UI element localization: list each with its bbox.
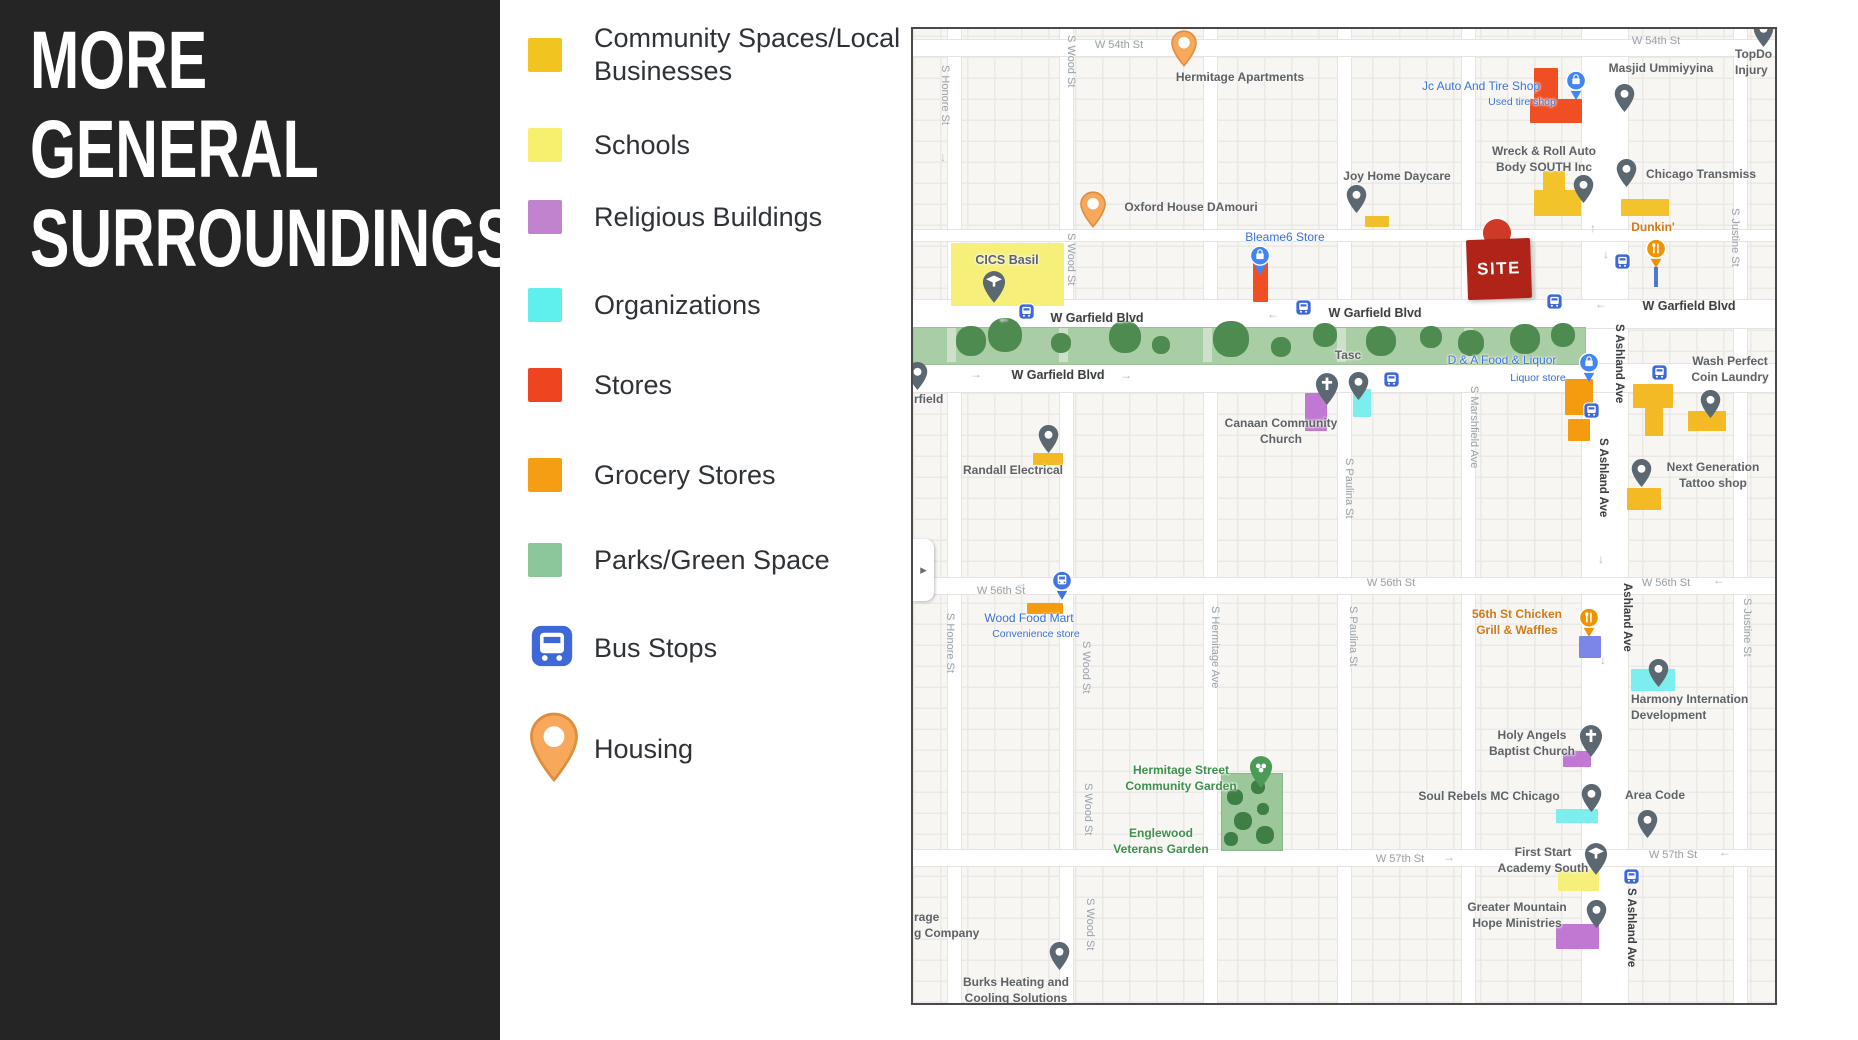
map-label-s-ashland-ave: S Ashland Ave bbox=[1597, 438, 1609, 517]
housing-pin-icon bbox=[528, 712, 580, 787]
map-label-s-honore-st: S Honore St bbox=[939, 65, 951, 125]
map-label-s-wood-st: S Wood St bbox=[1080, 641, 1092, 693]
label-line: ↓ bbox=[1600, 652, 1606, 668]
legend-label-stores: Stores bbox=[594, 369, 924, 402]
label-line: Baptist Church bbox=[1489, 743, 1575, 759]
map-label-chicago-transmiss: Chicago Transmiss bbox=[1646, 166, 1756, 182]
map-label-convenience-store: Convenience store bbox=[992, 626, 1080, 642]
map-label-harmony-internation: Harmony InternationDevelopment bbox=[1631, 691, 1748, 723]
organizations-swatch bbox=[528, 288, 562, 322]
label-line: Veterans Garden bbox=[1113, 841, 1208, 857]
map-label-s-wood-st: S Wood St bbox=[1084, 898, 1096, 950]
bus-57th-st bbox=[1623, 868, 1640, 890]
map-label-s-ashland-ave: S Ashland Ave bbox=[1625, 888, 1637, 967]
map-label-w-57th-st: W 57th St bbox=[1376, 851, 1424, 867]
map-label-label: ← bbox=[1595, 296, 1607, 312]
map-label-masjid-ummiyyina: Masjid Ummiyyina bbox=[1609, 60, 1714, 76]
map-label-label: → bbox=[1015, 575, 1027, 591]
label-line: → bbox=[1120, 367, 1132, 383]
map-label-joy-home-daycare: Joy Home Daycare bbox=[1343, 168, 1450, 184]
map-label-next-generation: Next GenerationTattoo shop bbox=[1667, 459, 1760, 491]
joy-daycare-block bbox=[1365, 216, 1389, 227]
pin-garfield-west bbox=[911, 361, 929, 396]
label-line: Hope Ministries bbox=[1467, 915, 1566, 931]
legend-item-grocery: Grocery Stores bbox=[528, 458, 924, 492]
legend-item-housing: Housing bbox=[528, 712, 924, 787]
pin-burks-heating bbox=[1048, 941, 1071, 976]
housing-hermitage-apartments bbox=[1170, 30, 1198, 72]
pin-joy-home-daycare bbox=[1345, 184, 1368, 219]
label-line: Community Garden bbox=[1125, 778, 1236, 794]
map-label-area-code: Area Code bbox=[1625, 787, 1685, 803]
map-label-label: ↓ bbox=[1603, 246, 1609, 262]
map-canvas: W 54th StW 54th StW 56th StW 56th StW 56… bbox=[911, 27, 1777, 1005]
label-line: W Garfield Blvd bbox=[1328, 305, 1421, 321]
map-label-englewood: EnglewoodVeterans Garden bbox=[1113, 825, 1208, 857]
bus-garfield-3 bbox=[1546, 293, 1563, 315]
legend-label-bus: Bus Stops bbox=[594, 632, 924, 665]
median-tree bbox=[1420, 326, 1442, 348]
map-label-tasc: Tasc bbox=[1335, 347, 1361, 363]
pin-harmony-international bbox=[1647, 658, 1670, 693]
label-line: Convenience store bbox=[992, 626, 1080, 642]
label-line: Jc Auto And Tire Shop bbox=[1422, 78, 1540, 94]
label-line: rage bbox=[914, 909, 979, 925]
map-label-oxford-house-damouri: Oxford House DAmouri bbox=[1124, 199, 1257, 215]
map-label-s-hermitage-ave: S Hermitage Ave bbox=[1209, 606, 1221, 688]
label-line: ← bbox=[1713, 572, 1725, 588]
map-label-s-ashland-ave: S Ashland Ave bbox=[1613, 324, 1625, 403]
pin-first-start-academy bbox=[1583, 842, 1609, 881]
label-line: W 54th St bbox=[1095, 37, 1143, 53]
map-label-label: ↑ bbox=[1590, 220, 1596, 236]
label-line: Wood Food Mart bbox=[984, 610, 1073, 626]
stores-swatch bbox=[528, 368, 562, 402]
title-line-2: GENERAL bbox=[30, 105, 515, 194]
label-line: → bbox=[1015, 575, 1027, 591]
map-label-label: ← bbox=[998, 310, 1010, 326]
label-line: → bbox=[970, 366, 982, 382]
map-label-label: ↓ bbox=[1600, 652, 1606, 668]
legend-label-schools: Schools bbox=[594, 129, 924, 162]
religious-swatch bbox=[528, 200, 562, 234]
label-line: First Start bbox=[1498, 844, 1589, 860]
median-tree bbox=[1551, 323, 1575, 347]
pin-cics-basil bbox=[981, 270, 1007, 309]
pin-canaan-church bbox=[1314, 372, 1340, 411]
legend-label-housing: Housing bbox=[594, 733, 924, 766]
pin-holy-angels bbox=[1578, 724, 1604, 763]
dunkin-block bbox=[1621, 199, 1669, 216]
map-label-s-marshfield-ave: S Marshfield Ave bbox=[1468, 386, 1480, 468]
bus-garfield-2 bbox=[1295, 299, 1312, 321]
food-dunkin-post bbox=[1654, 267, 1658, 287]
bus-garfield-4 bbox=[1383, 371, 1400, 393]
label-line: Chicago Transmiss bbox=[1646, 166, 1756, 182]
label-line: Harmony Internation bbox=[1631, 691, 1748, 707]
map-label-wood-food-mart: Wood Food Mart bbox=[984, 610, 1073, 626]
map-label-w-garfield-blvd: W Garfield Blvd bbox=[1328, 305, 1421, 321]
map-label-bleame6-store: Bleame6 Store bbox=[1245, 229, 1324, 245]
median-tree bbox=[1271, 337, 1291, 357]
garden-tree bbox=[1257, 803, 1269, 815]
label-line: Cooling Solutions bbox=[963, 990, 1069, 1005]
label-line: W Garfield Blvd bbox=[1011, 367, 1104, 383]
legend-item-religious: Religious Buildings bbox=[528, 200, 924, 234]
label-line: Coin Laundry bbox=[1691, 369, 1768, 385]
garden-tree bbox=[1256, 826, 1274, 844]
sidebar: MORE GENERAL SURROUNDINGS bbox=[0, 0, 500, 1040]
page-title: MORE GENERAL SURROUNDINGS bbox=[30, 16, 515, 283]
pin-masjid-ummiyyina bbox=[1613, 83, 1636, 118]
median-tree bbox=[1051, 333, 1071, 353]
legend-item-community: Community Spaces/Local Businesses bbox=[528, 22, 924, 88]
legend-item-bus: Bus Stops bbox=[528, 622, 924, 675]
label-line: Soul Rebels MC Chicago bbox=[1418, 788, 1559, 804]
map-label-s-paulina-st: S Paulina St bbox=[1343, 458, 1355, 519]
label-line: Injury bbox=[1735, 62, 1772, 78]
median-tree bbox=[1510, 324, 1540, 354]
label-line: Used tire shop bbox=[1488, 94, 1556, 110]
bus-wash-perfect bbox=[1651, 364, 1668, 386]
label-line: Randall Electrical bbox=[963, 462, 1063, 478]
pin-soul-rebels bbox=[1580, 783, 1603, 818]
label-line: Oxford House DAmouri bbox=[1124, 199, 1257, 215]
label-line: W 57th St bbox=[1376, 851, 1424, 867]
transit-56th-st bbox=[1050, 570, 1074, 606]
label-line: Academy South bbox=[1498, 860, 1589, 876]
map-label-w-56th-st: W 56th St bbox=[1367, 575, 1415, 591]
legend-label-community: Community Spaces/Local Businesses bbox=[594, 22, 924, 88]
median-tree bbox=[1366, 326, 1396, 356]
legend-item-parks: Parks/Green Space bbox=[528, 543, 924, 577]
map-label-label: → bbox=[970, 366, 982, 382]
map-label-w-57th-st: W 57th St bbox=[1649, 847, 1697, 863]
label-line: Body SOUTH Inc bbox=[1492, 159, 1596, 175]
parks-swatch bbox=[528, 543, 562, 577]
median-gap bbox=[947, 328, 956, 362]
label-line: Burks Heating and bbox=[963, 974, 1069, 990]
map-label-canaan-community: Canaan CommunityChurch bbox=[1225, 415, 1338, 447]
map-label-used-tire-shop: Used tire shop bbox=[1488, 94, 1556, 110]
map-label-label: ↓ bbox=[1598, 551, 1604, 567]
food-chicken-grill bbox=[1577, 607, 1601, 643]
label-line: → bbox=[1443, 849, 1455, 865]
bus-stop-icon bbox=[528, 622, 576, 675]
label-line: Next Generation bbox=[1667, 459, 1760, 475]
map-label-soul-rebels-mc-chicago: Soul Rebels MC Chicago bbox=[1418, 788, 1559, 804]
label-line: Masjid Ummiyyina bbox=[1609, 60, 1714, 76]
garden-tree bbox=[1224, 832, 1238, 846]
map-label-greater-mountain: Greater MountainHope Ministries bbox=[1467, 899, 1566, 931]
pin-area-code bbox=[1636, 809, 1659, 844]
median-gap bbox=[1203, 328, 1212, 362]
label-line: g Company bbox=[914, 925, 979, 941]
map-label-w-54th-st: W 54th St bbox=[1095, 37, 1143, 53]
label-line: W 56th St bbox=[1367, 575, 1415, 591]
map-label-s-wood-st: S Wood St bbox=[1082, 783, 1094, 835]
title-line-1: MORE bbox=[30, 16, 515, 105]
label-line: Canaan Community bbox=[1225, 415, 1338, 431]
pin-randall-electrical bbox=[1037, 424, 1060, 459]
bus-near-dunkin bbox=[1614, 253, 1631, 275]
pin-topdog-injury bbox=[1752, 27, 1775, 53]
title-line-3: SURROUNDINGS bbox=[30, 194, 515, 283]
map-label-wreck-roll-auto: Wreck & Roll AutoBody SOUTH Inc bbox=[1492, 143, 1596, 175]
map-label-label: → bbox=[1443, 849, 1455, 865]
map-panel-collapse-tab: ▸ bbox=[913, 539, 934, 601]
map-label-rage: rageg Company bbox=[914, 909, 979, 941]
median-tree bbox=[1213, 321, 1249, 357]
map-label-label: ↓ bbox=[940, 149, 946, 165]
label-line: ↓ bbox=[1598, 551, 1604, 567]
map-label-s-justine-st: S Justine St bbox=[1729, 208, 1741, 267]
pin-greater-mountain bbox=[1585, 899, 1608, 934]
map-label-label: → bbox=[1120, 367, 1132, 383]
legend-label-grocery: Grocery Stores bbox=[594, 459, 924, 492]
label-line: W 57th St bbox=[1649, 847, 1697, 863]
map-label-label: ← bbox=[1719, 844, 1731, 860]
pin-chicago-transmission bbox=[1615, 158, 1638, 193]
label-line: ↓ bbox=[1603, 246, 1609, 262]
map-label-w-garfield-blvd: W Garfield Blvd bbox=[1642, 298, 1735, 314]
label-line: Hermitage Street bbox=[1125, 762, 1236, 778]
site-label: SITE bbox=[1466, 238, 1532, 300]
label-line: ↑ bbox=[1590, 220, 1596, 236]
wash-perfect-a bbox=[1633, 384, 1673, 408]
label-line: 56th St Chicken bbox=[1472, 606, 1562, 622]
bus-garfield-1 bbox=[1018, 303, 1035, 325]
label-line: CICS Basil bbox=[975, 252, 1038, 268]
map-label-first-start: First StartAcademy South bbox=[1498, 844, 1589, 876]
map-label-w-56th-st: W 56th St bbox=[1642, 575, 1690, 591]
road-w-57th-st bbox=[913, 849, 1775, 867]
map-label-jc-auto-and-tire-shop: Jc Auto And Tire Shop bbox=[1422, 78, 1540, 94]
pin-wash-perfect bbox=[1699, 389, 1722, 424]
slide: { "slide": { "title_lines": ["MORE", "GE… bbox=[0, 0, 1858, 1040]
median-tree bbox=[1313, 323, 1337, 347]
legend-item-organizations: Organizations bbox=[528, 288, 924, 322]
label-line: Greater Mountain bbox=[1467, 899, 1566, 915]
label-line: Dunkin' bbox=[1631, 219, 1675, 235]
label-line: ← bbox=[1267, 306, 1279, 322]
label-line: Church bbox=[1225, 431, 1338, 447]
median-tree bbox=[956, 326, 986, 356]
median-tree bbox=[1152, 336, 1170, 354]
legend-label-parks: Parks/Green Space bbox=[594, 544, 924, 577]
site-marker: SITE bbox=[1465, 219, 1537, 305]
map-label-d-a-food-liquor: D & A Food & Liquor bbox=[1448, 352, 1557, 368]
label-line: Holy Angels bbox=[1489, 727, 1575, 743]
label-line: Joy Home Daycare bbox=[1343, 168, 1450, 184]
map-label-w-54th-st: W 54th St bbox=[1632, 33, 1680, 49]
housing-oxford-house bbox=[1079, 191, 1107, 233]
label-line: W 54th St bbox=[1632, 33, 1680, 49]
label-line: Grill & Waffles bbox=[1472, 622, 1562, 638]
garden-tree bbox=[1234, 812, 1252, 830]
label-line: Area Code bbox=[1625, 787, 1685, 803]
map-label-label: ← bbox=[1713, 572, 1725, 588]
map-label-s-justine-st: S Justine St bbox=[1741, 598, 1753, 657]
shop-jc-auto bbox=[1564, 70, 1588, 106]
pin-next-generation bbox=[1630, 458, 1653, 493]
grocery-swatch bbox=[528, 458, 562, 492]
map-label-s-paulina-st: S Paulina St bbox=[1347, 606, 1359, 667]
label-line: Tattoo shop bbox=[1667, 475, 1760, 491]
map-label-randall-electrical: Randall Electrical bbox=[963, 462, 1063, 478]
label-line: Wash Perfect bbox=[1691, 353, 1768, 369]
shop-bleame6 bbox=[1248, 245, 1272, 281]
map-label-hermitage-street: Hermitage StreetCommunity Garden bbox=[1125, 762, 1236, 794]
label-line: Wreck & Roll Auto bbox=[1492, 143, 1596, 159]
label-line: Bleame6 Store bbox=[1245, 229, 1324, 245]
legend-label-religious: Religious Buildings bbox=[594, 201, 924, 234]
map-label-cics-basil: CICS Basil bbox=[975, 252, 1038, 268]
map-label-s-wood-st: S Wood St bbox=[1065, 233, 1077, 285]
legend-item-schools: Schools bbox=[528, 128, 924, 162]
label-line: W Garfield Blvd bbox=[1642, 298, 1735, 314]
map-label-w-garfield-blvd: W Garfield Blvd bbox=[1050, 310, 1143, 326]
pin-wreck-and-roll bbox=[1572, 174, 1595, 209]
label-line: ← bbox=[1595, 296, 1607, 312]
map-label-label: ← bbox=[1267, 306, 1279, 322]
label-line: Tasc bbox=[1335, 347, 1361, 363]
label-line: W Garfield Blvd bbox=[1050, 310, 1143, 326]
community-swatch bbox=[528, 38, 562, 72]
map-label-ashland-ave: Ashland Ave bbox=[1621, 583, 1633, 652]
shop-da-food-liquor bbox=[1577, 352, 1601, 388]
legend-item-stores: Stores bbox=[528, 368, 924, 402]
map-label-w-garfield-blvd: W Garfield Blvd bbox=[1011, 367, 1104, 383]
map-label-wash-perfect: Wash PerfectCoin Laundry bbox=[1691, 353, 1768, 385]
legend-label-organizations: Organizations bbox=[594, 289, 924, 322]
label-line: ← bbox=[998, 310, 1010, 326]
map-label-56th-st-chicken: 56th St ChickenGrill & Waffles bbox=[1472, 606, 1562, 638]
pin-tasc bbox=[1347, 371, 1370, 406]
label-line: ← bbox=[1719, 844, 1731, 860]
map-label-holy-angels: Holy AngelsBaptist Church bbox=[1489, 727, 1575, 759]
label-line: ↓ bbox=[940, 149, 946, 165]
schools-swatch bbox=[528, 128, 562, 162]
map-label-s-honore-st: S Honore St bbox=[944, 613, 956, 673]
bus-ashland-1 bbox=[1583, 402, 1600, 424]
label-line: Development bbox=[1631, 707, 1748, 723]
label-line: Englewood bbox=[1113, 825, 1208, 841]
wash-perfect-b bbox=[1645, 408, 1663, 436]
map-label-burks-heating-and: Burks Heating andCooling Solutions bbox=[963, 974, 1069, 1005]
map-label-liquor-store: Liquor store bbox=[1510, 370, 1565, 386]
map-label-dunkin: Dunkin' bbox=[1631, 219, 1675, 235]
map-label-s-wood-st: S Wood St bbox=[1065, 35, 1077, 87]
label-line: Liquor store bbox=[1510, 370, 1565, 386]
pin-hermitage-garden bbox=[1248, 755, 1274, 794]
label-line: W 56th St bbox=[1642, 575, 1690, 591]
label-line: D & A Food & Liquor bbox=[1448, 352, 1557, 368]
